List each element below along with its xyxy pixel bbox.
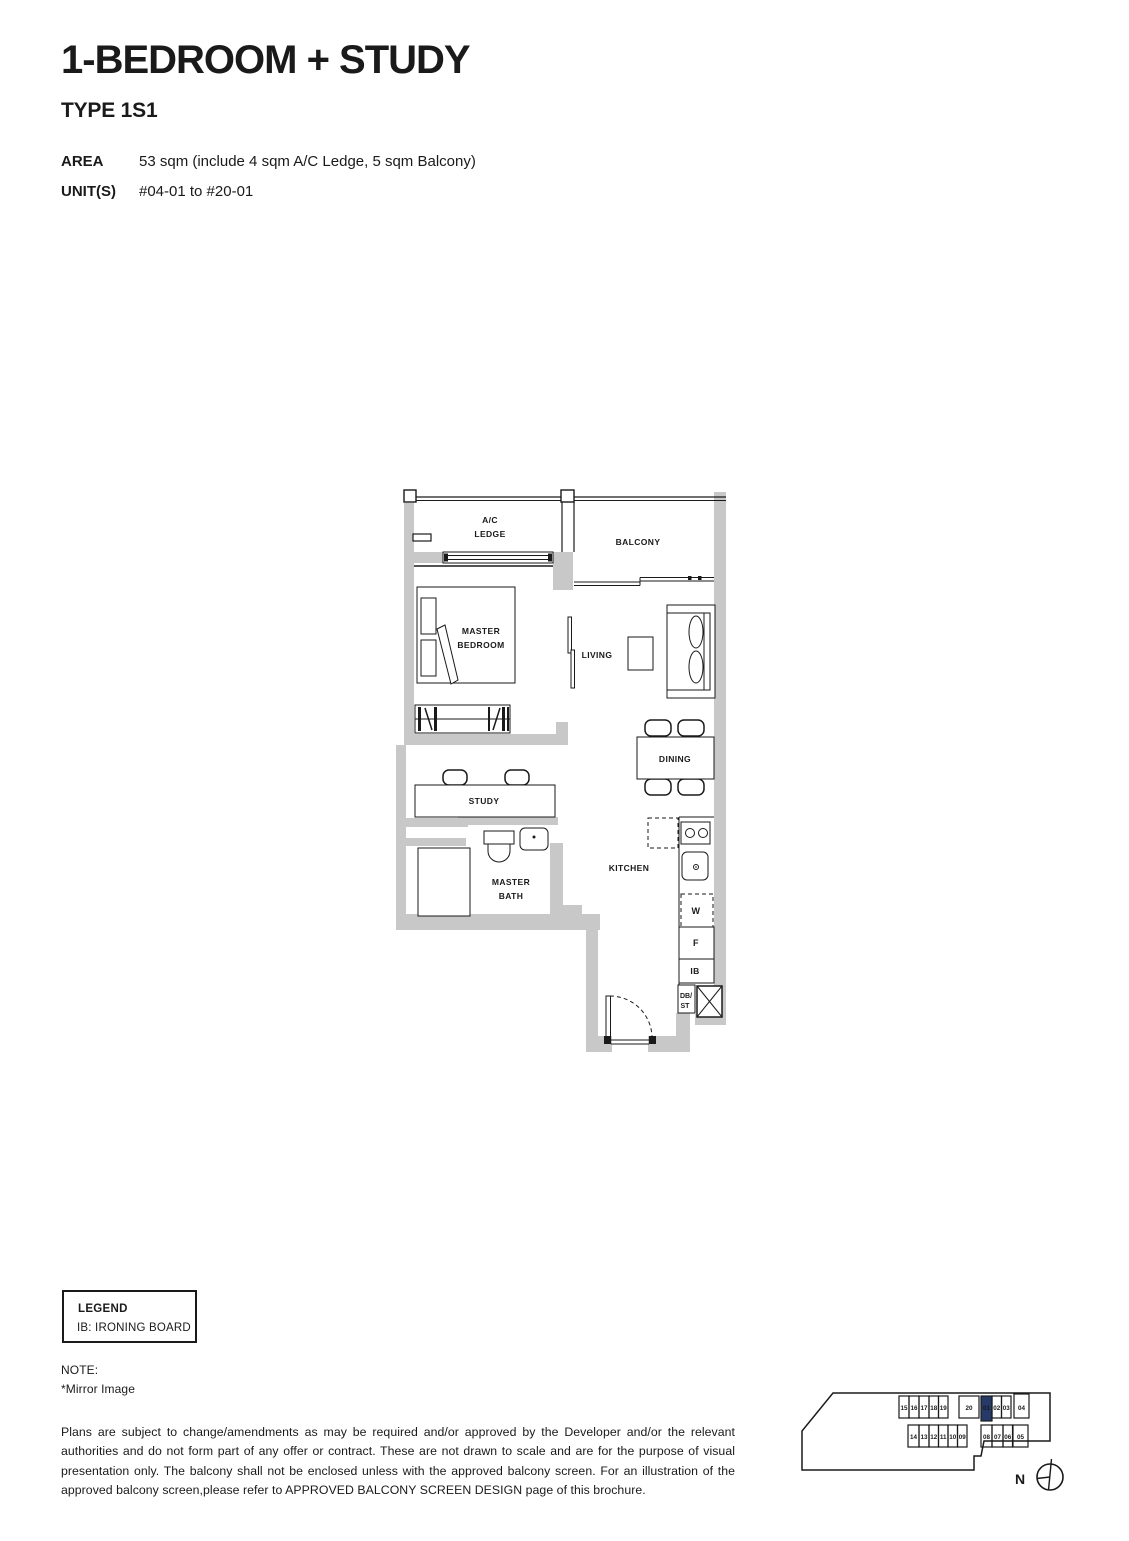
note-mirror-image: *Mirror Image bbox=[61, 1382, 135, 1396]
svg-text:05: 05 bbox=[1017, 1434, 1025, 1441]
minimap-bottom-row: 14 13 12 11 10 09 08 07 06 05 bbox=[908, 1425, 1028, 1447]
svg-text:09: 09 bbox=[959, 1434, 967, 1441]
svg-text:20: 20 bbox=[965, 1405, 973, 1412]
shaft bbox=[697, 986, 722, 1017]
legend-item: IB: IRONING BOARD bbox=[77, 1322, 191, 1334]
minimap-unit-01-label: 01 bbox=[983, 1405, 991, 1412]
dining-label: DINING bbox=[659, 754, 691, 764]
svg-text:06: 06 bbox=[1004, 1434, 1012, 1441]
area-label: AREA bbox=[61, 153, 104, 170]
master-bedroom-label: MASTER bbox=[462, 626, 500, 636]
svg-text:11: 11 bbox=[940, 1434, 947, 1441]
ac-ledge-label: A/C bbox=[482, 515, 498, 525]
page-title: 1-BEDROOM + STUDY bbox=[61, 38, 470, 83]
svg-text:02: 02 bbox=[993, 1405, 1001, 1412]
unit-type: TYPE 1S1 bbox=[61, 99, 157, 123]
svg-text:08: 08 bbox=[983, 1434, 991, 1441]
svg-text:ST: ST bbox=[681, 1003, 691, 1010]
counter-dashed bbox=[648, 818, 678, 848]
db-st-label: DB/ bbox=[680, 993, 692, 1000]
legend-title: LEGEND bbox=[78, 1303, 128, 1315]
toilet-tank bbox=[484, 831, 514, 844]
balcony-window bbox=[574, 576, 714, 586]
kitchen-sink bbox=[682, 852, 708, 880]
fridge-label: F bbox=[693, 938, 699, 948]
north-label: N bbox=[1015, 1471, 1025, 1487]
sofa bbox=[667, 605, 715, 698]
washer-label: W bbox=[692, 906, 701, 916]
svg-text:03: 03 bbox=[1003, 1405, 1011, 1412]
site-minimap: 15 16 17 18 19 20 01 02 03 04 bbox=[795, 1380, 1067, 1498]
svg-text:BEDROOM: BEDROOM bbox=[457, 640, 504, 650]
svg-text:12: 12 bbox=[930, 1434, 938, 1441]
svg-text:16: 16 bbox=[910, 1405, 918, 1412]
toilet-bowl bbox=[488, 844, 510, 862]
floorplan-drawing: A/C LEDGE BALCONY MASTER BEDROOM LIVING … bbox=[395, 478, 745, 1070]
svg-text:BATH: BATH bbox=[499, 891, 524, 901]
coffee-table bbox=[628, 637, 653, 670]
svg-text:17: 17 bbox=[920, 1405, 928, 1412]
kitchen-label: KITCHEN bbox=[609, 863, 650, 873]
svg-text:LEDGE: LEDGE bbox=[474, 529, 505, 539]
area-value: 53 sqm (include 4 sqm A/C Ledge, 5 sqm B… bbox=[139, 153, 476, 170]
units-value: #04-01 to #20-01 bbox=[139, 183, 253, 200]
bath-sink bbox=[520, 828, 548, 850]
svg-text:14: 14 bbox=[910, 1434, 918, 1441]
ironing-board-label: IB bbox=[690, 966, 699, 976]
wardrobe bbox=[415, 705, 510, 733]
floorplan-brochure-page: 1-BEDROOM + STUDY TYPE 1S1 AREA 53 sqm (… bbox=[0, 0, 1129, 1541]
svg-text:15: 15 bbox=[900, 1405, 908, 1412]
disclaimer-text: Plans are subject to change/amendments a… bbox=[61, 1423, 735, 1500]
kitchen-fixtures bbox=[648, 817, 714, 1013]
study-label: STUDY bbox=[469, 796, 500, 806]
living-label: LIVING bbox=[582, 650, 613, 660]
svg-text:07: 07 bbox=[994, 1434, 1002, 1441]
study-furniture bbox=[415, 770, 555, 817]
legend-box: LEGEND IB: IRONING BOARD bbox=[62, 1290, 197, 1343]
ac-ledge-hook bbox=[413, 534, 431, 541]
units-label: UNIT(S) bbox=[61, 183, 116, 200]
minimap-top-row: 15 16 17 18 19 20 01 02 03 04 bbox=[899, 1394, 1029, 1421]
svg-text:10: 10 bbox=[949, 1434, 957, 1441]
balcony-label: BALCONY bbox=[616, 537, 661, 547]
svg-text:04: 04 bbox=[1018, 1405, 1026, 1412]
note-title: NOTE: bbox=[61, 1363, 98, 1377]
north-arrow-icon: N bbox=[1015, 1459, 1063, 1490]
svg-text:19: 19 bbox=[940, 1405, 948, 1412]
shower bbox=[418, 848, 470, 916]
ac-ledge-and-balcony-boundary bbox=[404, 490, 726, 552]
bedroom-sliding-door bbox=[568, 617, 575, 688]
master-bath-label: MASTER bbox=[492, 877, 530, 887]
svg-text:18: 18 bbox=[930, 1405, 938, 1412]
svg-text:13: 13 bbox=[920, 1434, 928, 1441]
